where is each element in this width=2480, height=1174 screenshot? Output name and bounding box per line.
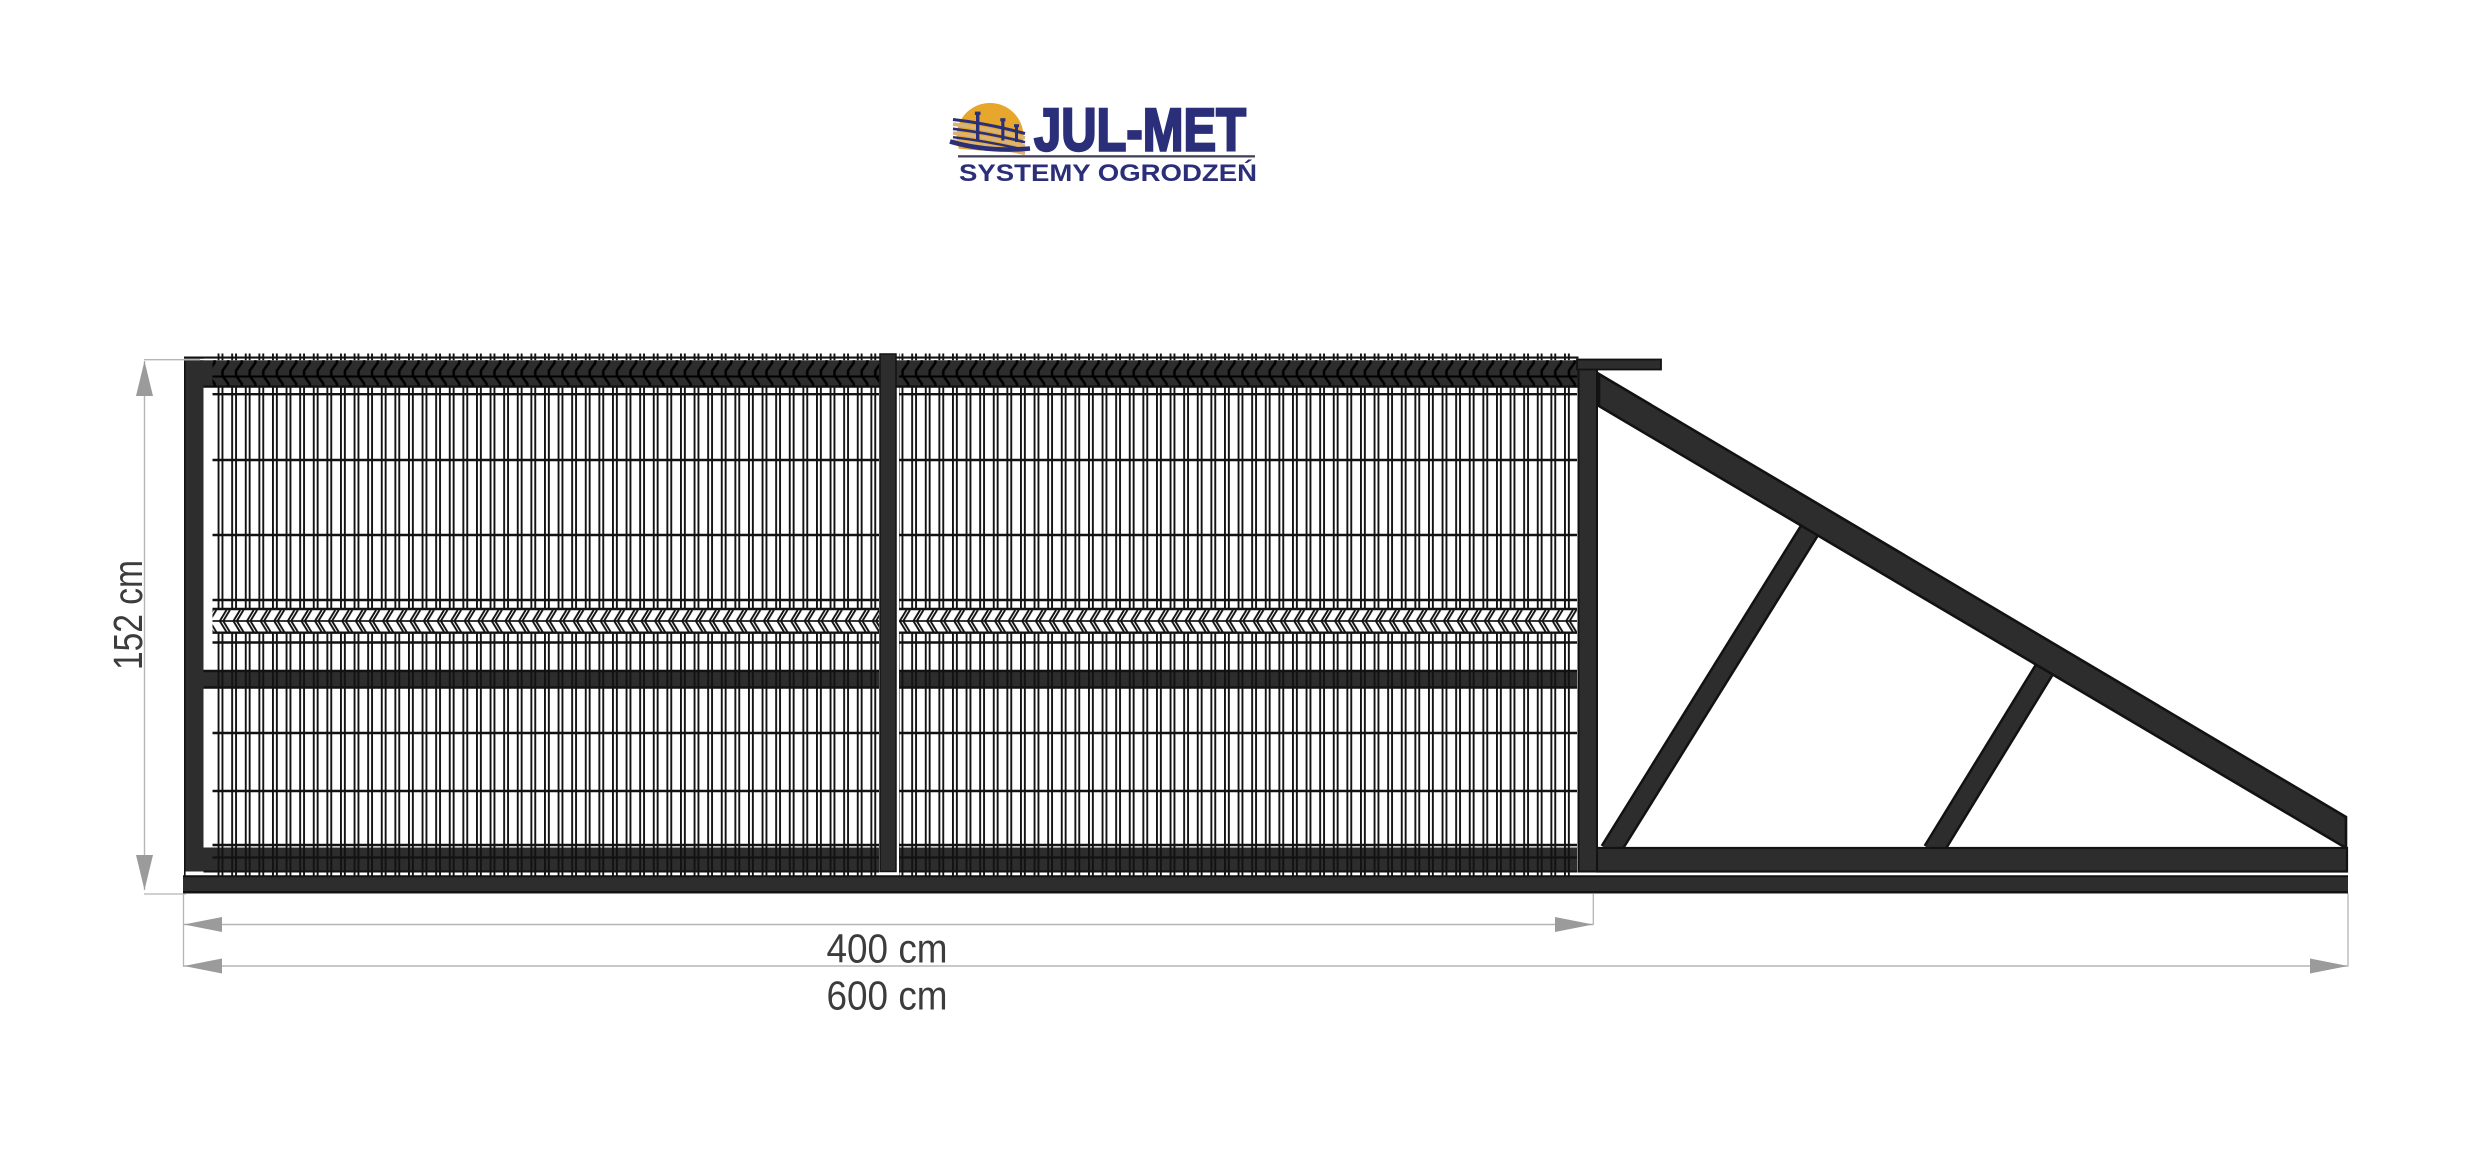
svg-text:JUL-MET: JUL-MET <box>1034 97 1246 164</box>
svg-text:SYSTEMY OGRODZEŃ: SYSTEMY OGRODZEŃ <box>959 159 1257 187</box>
svg-text:600 cm: 600 cm <box>827 973 948 1019</box>
svg-text:152 cm: 152 cm <box>105 560 151 670</box>
svg-text:400 cm: 400 cm <box>827 926 948 972</box>
